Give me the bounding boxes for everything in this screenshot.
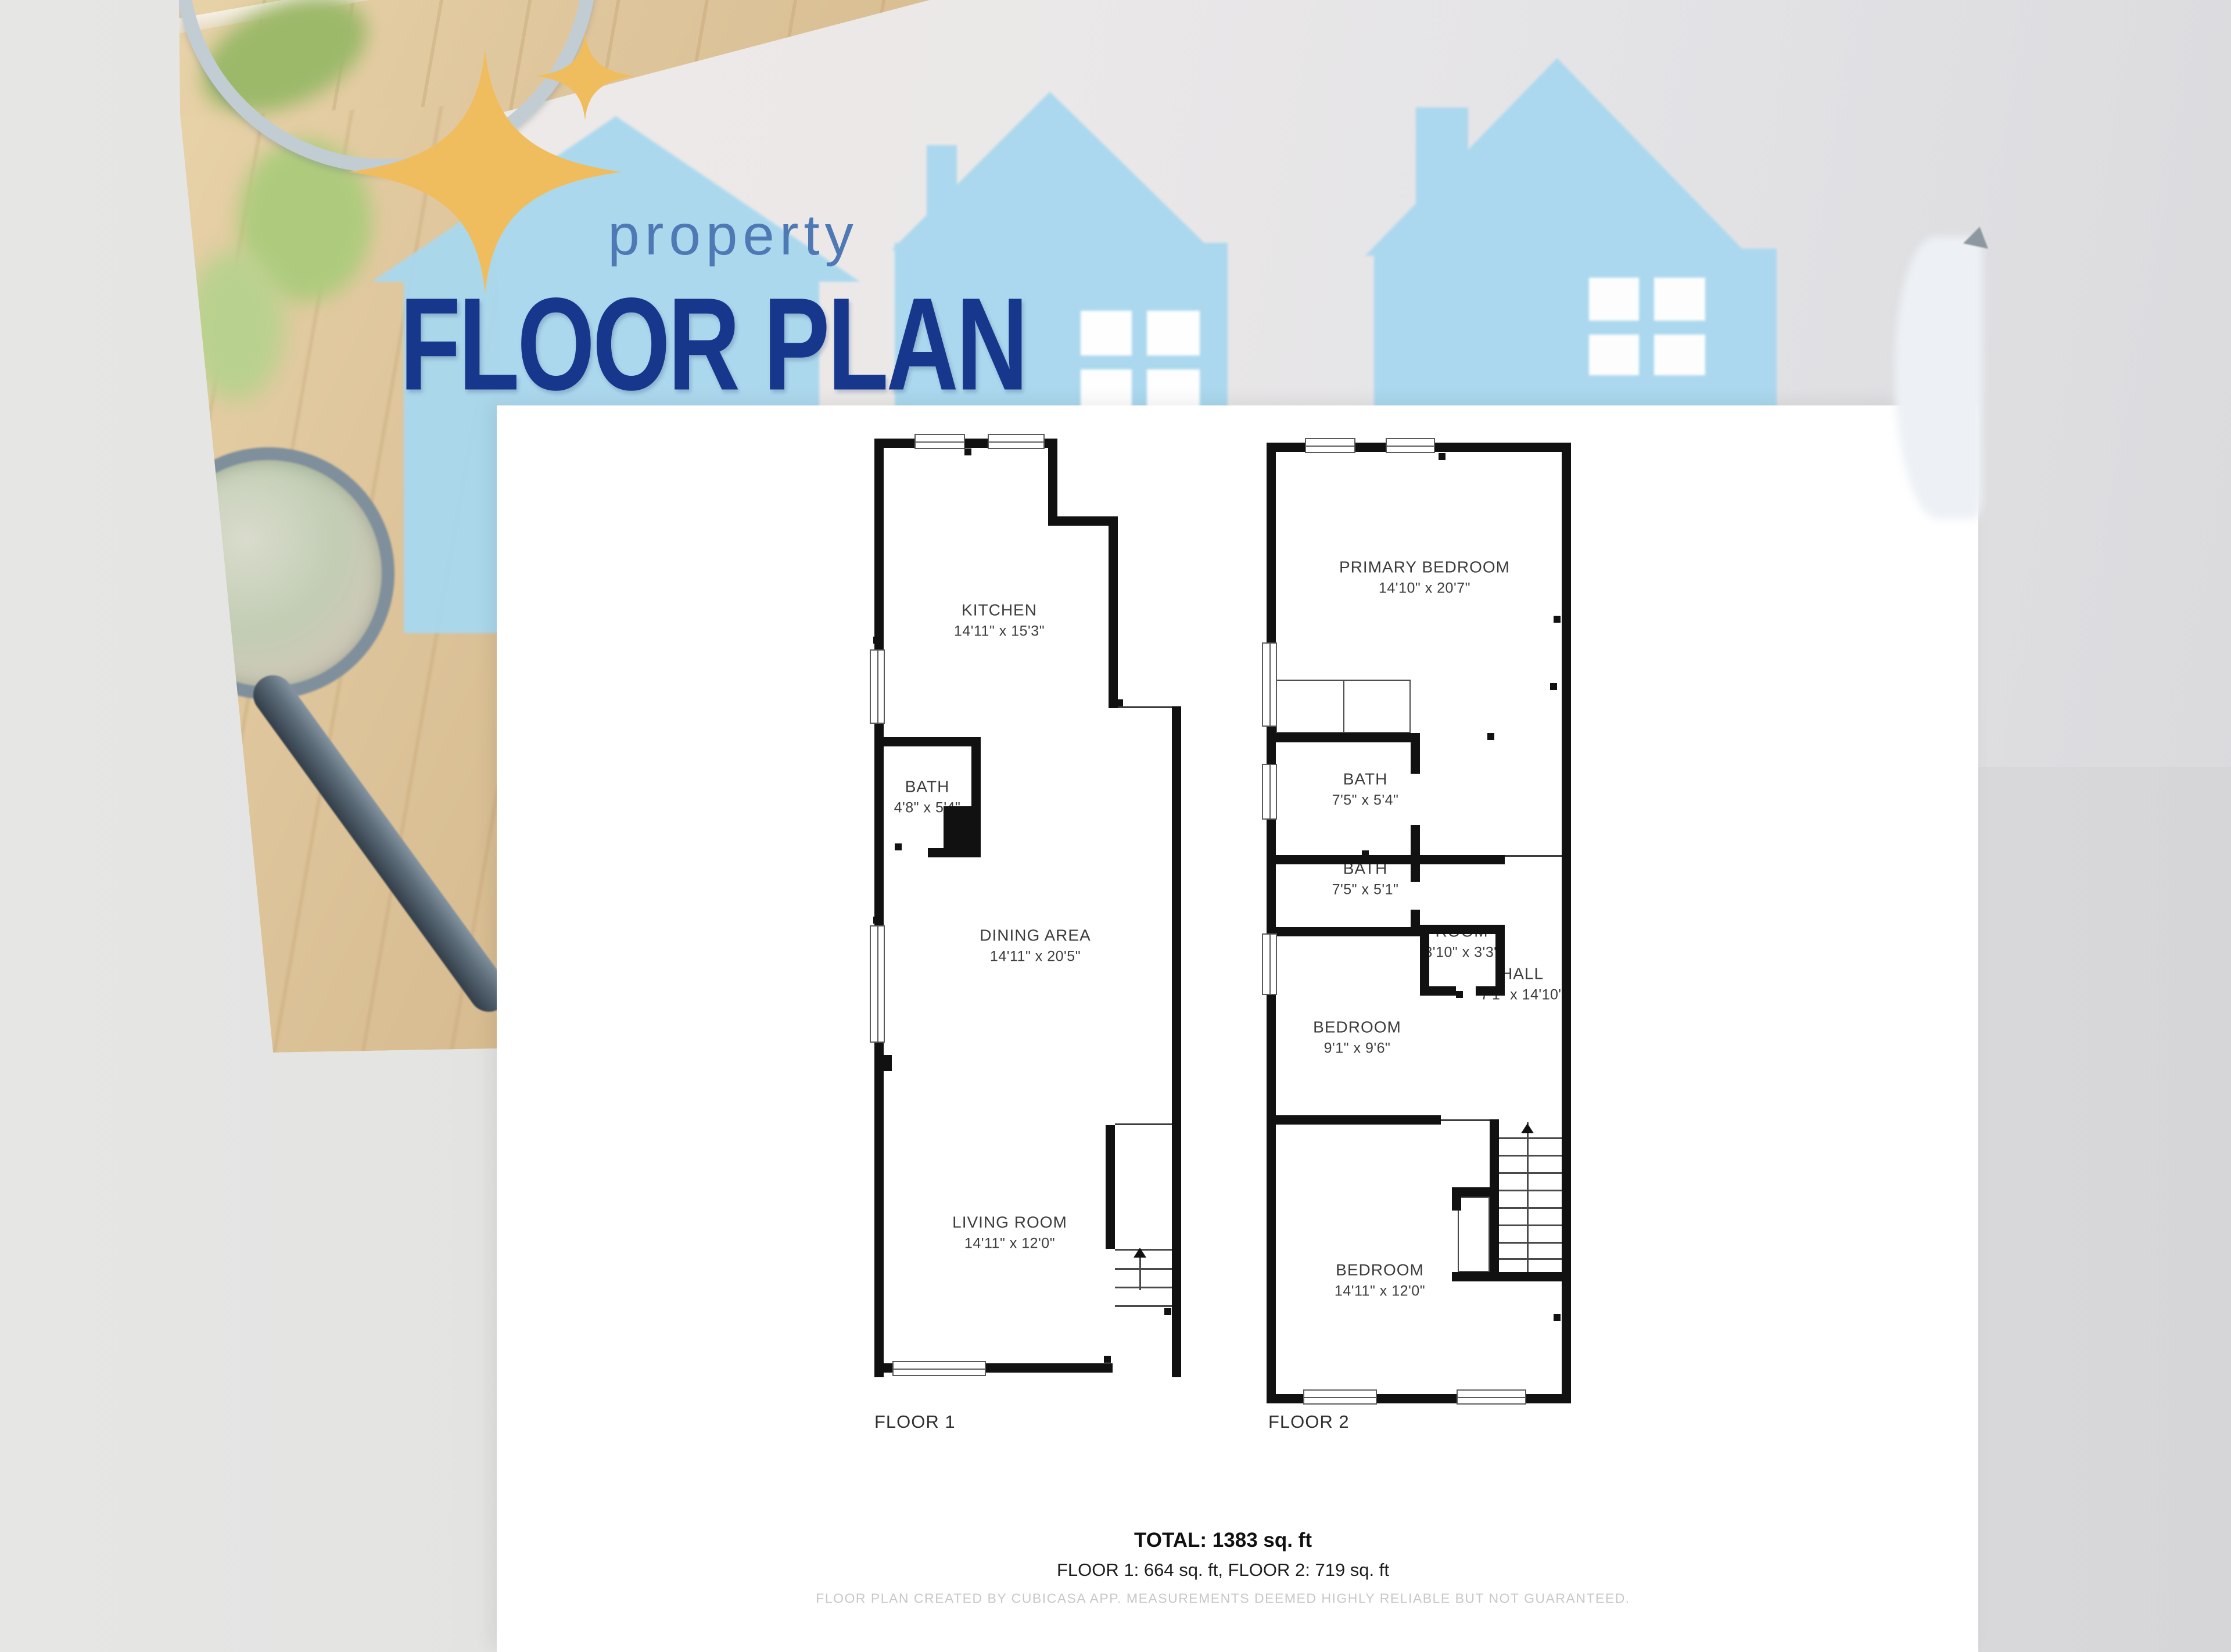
stair-tread [1499, 1207, 1562, 1209]
door-dot [895, 843, 902, 850]
opening-line [1505, 855, 1562, 857]
wall-segment [1267, 855, 1505, 864]
door-dot [1550, 683, 1557, 690]
door-dot [873, 917, 880, 924]
wall-segment [1411, 910, 1420, 927]
wall-segment [1562, 443, 1571, 1403]
wall-segment [1420, 925, 1429, 996]
wall-segment [1411, 864, 1420, 882]
paper-roll [1895, 237, 1982, 519]
door-dot [1439, 453, 1446, 460]
room-label-hall: HALL 7'1" x 14'10" [1480, 965, 1564, 1004]
sparkle-icon-small [536, 32, 634, 120]
floor2-tag: FLOOR 2 [1268, 1412, 1350, 1432]
opening-line [1441, 1119, 1490, 1121]
title-floor-plan: FLOOR PLAN [400, 268, 1026, 420]
window [914, 434, 965, 449]
wall-segment [874, 439, 884, 1377]
wall-segment [1411, 825, 1420, 855]
window [1386, 438, 1435, 453]
opening-line [1118, 706, 1173, 708]
stair-tread [1499, 1242, 1562, 1244]
stair-tread [1115, 1287, 1172, 1288]
window [892, 1361, 986, 1376]
stair-arrow-shaft [1527, 1132, 1529, 1158]
window [1457, 1389, 1526, 1405]
wall-segment [1490, 1119, 1499, 1275]
room-label-kitchen: KITCHEN 14'11" x 15'3" [954, 601, 1045, 640]
wall-segment [1267, 927, 1420, 936]
summary-breakdown: FLOOR 1: 664 sq. ft, FLOOR 2: 719 sq. ft [1057, 1560, 1389, 1581]
wall-segment [884, 737, 981, 746]
door-dot [1164, 1308, 1171, 1315]
room-label-living: LIVING ROOM 14'11" x 12'0" [952, 1213, 1067, 1252]
stair-tread [1499, 1137, 1562, 1139]
stair-tread [1499, 1258, 1562, 1260]
door-dot [1554, 616, 1561, 623]
wall-segment [1267, 733, 1420, 742]
window [870, 925, 885, 1043]
wall-segment [1452, 1187, 1461, 1211]
door-dot [1104, 1356, 1111, 1363]
opening-line [1115, 1123, 1172, 1125]
door-dot [1268, 922, 1275, 929]
stair-arrow-icon [1134, 1248, 1146, 1258]
wall-segment [1048, 516, 1118, 526]
door-dot [1554, 1314, 1561, 1321]
window [870, 649, 885, 724]
wall-segment [884, 1055, 892, 1071]
stair-tread [1499, 1190, 1562, 1191]
wall-segment [1048, 439, 1057, 526]
stair-arrow-shaft [1139, 1256, 1141, 1290]
wall-segment [1267, 1115, 1441, 1125]
stair-tread [1115, 1268, 1172, 1270]
window [988, 434, 1045, 449]
wall-segment [1452, 1272, 1571, 1281]
window [1262, 764, 1277, 820]
wall-segment [1476, 986, 1505, 996]
wall-segment [1495, 925, 1505, 996]
floor1-tag: FLOOR 1 [874, 1412, 956, 1432]
door-dot [873, 637, 880, 644]
stair-tread [1115, 1305, 1172, 1307]
stair-arrow-icon [1521, 1123, 1534, 1133]
stair-tread [1499, 1224, 1562, 1226]
closet-box [1458, 1197, 1490, 1272]
room-label-bedroom-bottom: BEDROOM 14'11" x 12'0" [1335, 1261, 1425, 1300]
closet-box [1276, 680, 1411, 733]
door-dot [1487, 733, 1494, 740]
wall-segment [1420, 925, 1505, 934]
stair-tread [1499, 1155, 1562, 1157]
room-label-primary-bedroom: PRIMARY BEDROOM 14'10" x 20'7" [1339, 558, 1510, 597]
wall-segment [1420, 986, 1456, 996]
window [1262, 642, 1277, 727]
room-label-bath-lower: BATH 7'5" x 5'1" [1332, 860, 1399, 899]
door-dot [1116, 699, 1123, 706]
wall-segment [1172, 706, 1181, 1377]
room-label-bath-upper: BATH 7'5" x 5'4" [1332, 770, 1399, 809]
floor-plan-layer: KITCHEN 14'11" x 15'3" BATH 4'8" x 5'4" … [0, 0, 2231, 1652]
door-dot [964, 448, 971, 455]
room-label-dining: DINING AREA 14'11" x 20'5" [980, 926, 1091, 965]
stair-tread [1499, 1172, 1562, 1174]
door-dot [1268, 633, 1275, 640]
room-label-bedroom-mid: BEDROOM 9'1" x 9'6" [1313, 1018, 1401, 1057]
wall-segment [1109, 516, 1118, 708]
window [1262, 933, 1277, 995]
wall-opening [1113, 1363, 1172, 1373]
door-dot [1456, 991, 1463, 998]
summary-total: TOTAL: 1383 sq. ft [1134, 1529, 1312, 1552]
wall-segment [1411, 733, 1420, 774]
door-dot [1362, 850, 1369, 857]
door-dot [1268, 755, 1275, 762]
wall-segment [1106, 1125, 1115, 1249]
title-property: property [594, 202, 873, 268]
disclaimer-text: FLOOR PLAN CREATED BY CUBICASA APP. MEAS… [816, 1591, 1630, 1607]
wall-segment [944, 806, 981, 857]
window [1303, 1389, 1377, 1405]
window [1305, 438, 1355, 453]
door-dot [1362, 929, 1369, 936]
